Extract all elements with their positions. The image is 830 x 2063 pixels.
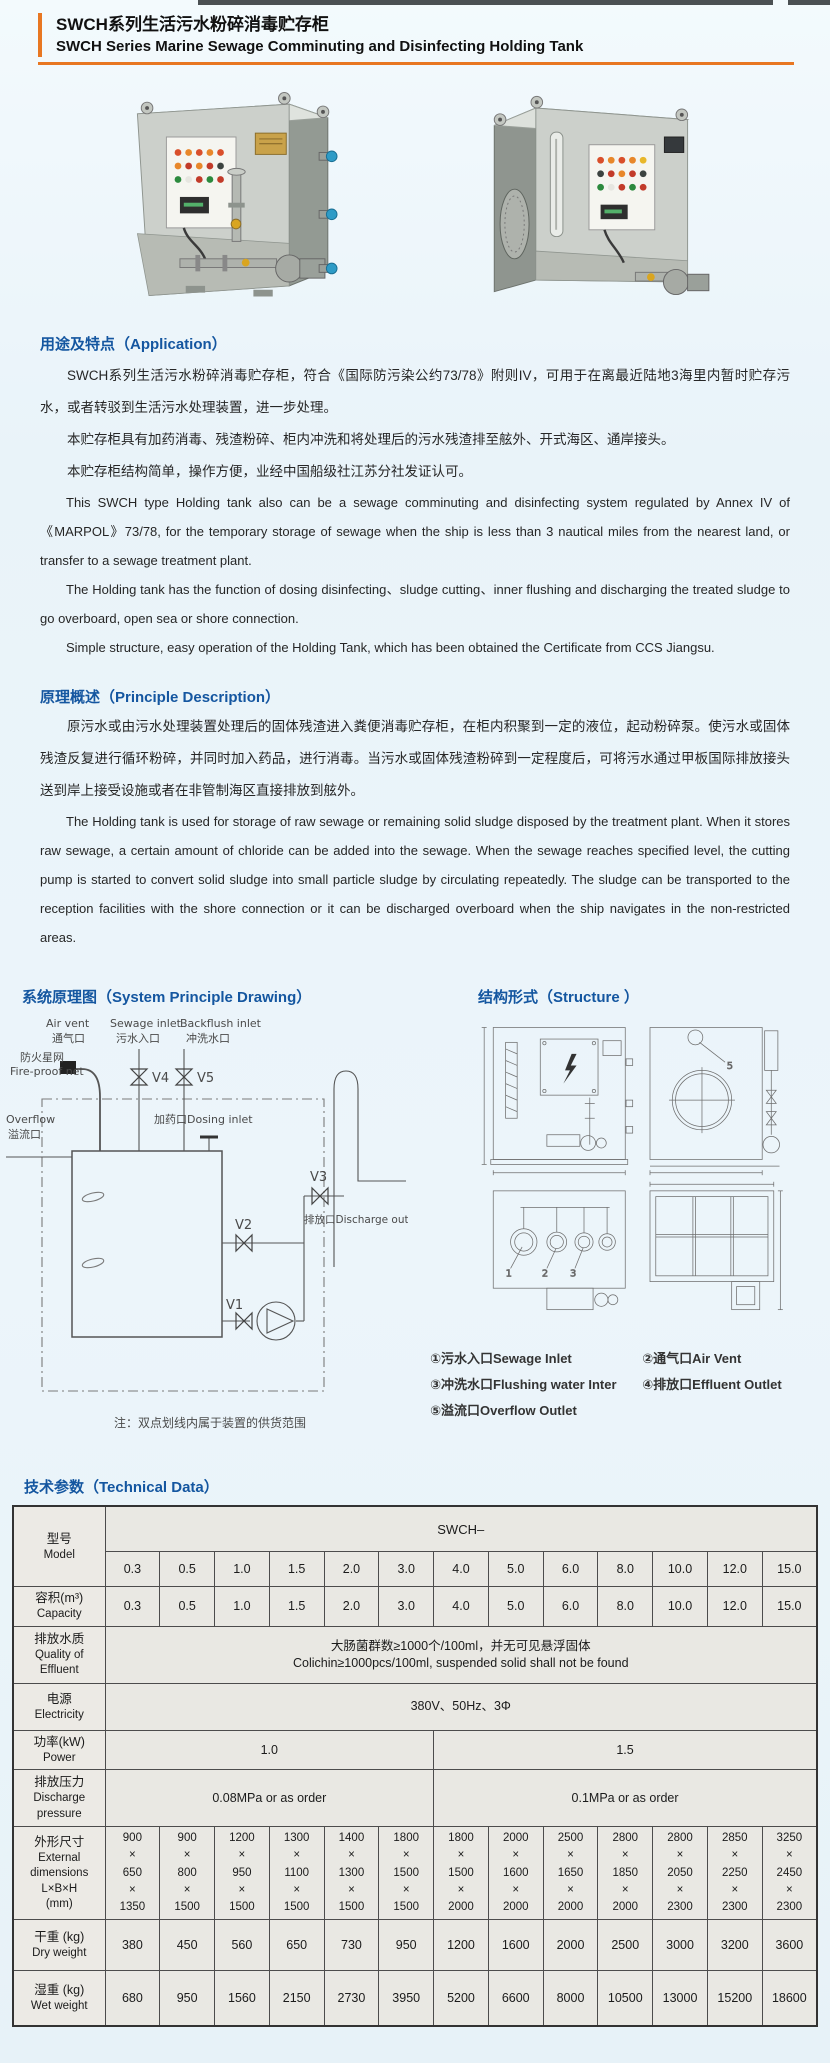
electricity-label-zh: 电源 [15,1691,104,1708]
row-dims-cell: 2500×1650×2000 [543,1827,598,1920]
label-v5: V5 [197,1071,214,1086]
pressure-label-zh: 排放压力 [15,1774,104,1791]
row-models-cell: 8.0 [598,1552,653,1587]
dry-weight-label-zh: 干重 (kg) [15,1929,104,1946]
label-overflow-zh: 溢流口 [8,1127,41,1141]
dry-weight-label-en: Dry weight [15,1946,104,1962]
row-dry-cell: 950 [379,1920,434,1971]
top-strip [198,0,773,5]
application-paragraph-zh-3: 本贮存柜结构简单，操作方便，业经中国船级社江苏分社发证认可。 [40,456,790,488]
capacity-label-zh: 容积(m³) [15,1590,104,1607]
row-capacity-cell: 15.0 [762,1587,817,1626]
row-wet-cell: 13000 [653,1971,708,2027]
label-overflow-en: Overflow [6,1113,55,1126]
row-capacity-cell: 8.0 [598,1587,653,1626]
label-item-3: 3 [570,1269,576,1280]
row-wet-cell: 6600 [488,1971,543,2027]
effluent-value-zh: 大肠菌群数≥1000个/100ml，并无可见悬浮固体 [107,1638,816,1655]
pressure-label-cell: 排放压力 Discharge pressure [13,1770,105,1827]
effluent-row: 排放水质 Quality of Effluent 大肠菌群数≥1000个/100… [13,1626,817,1683]
row-capacity-cell: 1.5 [269,1587,324,1626]
row-wet-cell: 5200 [434,1971,489,2027]
row-dry-cell: 3600 [762,1920,817,1971]
structure-legend-item: ③冲洗水口Flushing water Inter [430,1374,642,1393]
row-dry-cell: 2500 [598,1920,653,1971]
row-dry-cell: 3200 [707,1920,762,1971]
structure-legend-item: ⑤溢流口Overflow Outlet [430,1400,642,1419]
valves [131,1069,328,1329]
row-power-cell: 1.5 [434,1730,817,1769]
pump-symbol [257,1302,295,1340]
row-capacity-cell: 2.0 [324,1587,379,1626]
wet-weight-label-en: Wet weight [15,1999,104,2015]
row-models-cell: 1.5 [269,1552,324,1587]
power-label-zh: 功率(kW) [15,1734,104,1751]
label-v3: V3 [310,1170,327,1185]
row-dims-cell: 2000×1600×2000 [488,1827,543,1920]
label-item-2: 2 [542,1269,548,1280]
principle-heading: 原理概述（Principle Description） [40,686,790,707]
row-capacity-cell: 12.0 [707,1587,762,1626]
capacity-row: 容积(m³) Capacity 0.30.51.01.52.03.04.05.0… [13,1587,817,1626]
application-paragraph-en-1: This SWCH type Holding tank also can be … [40,488,790,575]
row-dims-cell: 2850×2250×2300 [707,1827,762,1920]
structure-side-view: 5 [650,1028,780,1176]
row-wet-cell: 10500 [598,1971,653,2027]
row-wet-cell: 680 [105,1971,160,2027]
pressure-row: 排放压力 Discharge pressure 0.08MPa or as or… [13,1770,817,1827]
electricity-value-cell: 380V、50Hz、3Φ [105,1683,817,1730]
title-block: SWCH系列生活污水粉碎消毒贮存柜 SWCH Series Marine Sew… [38,13,794,65]
structure-top-view: 1 2 3 [493,1191,625,1310]
overboard-pipe [334,1071,406,1267]
row-capacity-cell: 10.0 [653,1587,708,1626]
model-values-row: 0.30.51.01.52.03.04.05.06.08.010.012.015… [13,1552,817,1587]
row-pressure-cell: 0.1MPa or as order [434,1770,817,1827]
effluent-label-zh: 排放水质 [15,1631,104,1648]
structure-legend: ①污水入口Sewage Inlet②通气口Air Vent③冲洗水口Flushi… [430,1348,822,1419]
row-wet-cell: 3950 [379,1971,434,2027]
wet-weight-label-cell: 湿重 (kg) Wet weight [13,1971,105,2027]
label-dosing: 加药口Dosing inlet [154,1113,253,1126]
application-paragraph-en-2: The Holding tank has the function of dos… [40,575,790,633]
label-air-vent-zh: 通气口 [52,1031,85,1045]
row-wet-cell: 8000 [543,1971,598,2027]
structure-legend-item: ②通气口Air Vent [642,1348,822,1367]
label-sewage-en: Sewage inlet [110,1017,182,1030]
row-dims-cell: 1300×1100×1500 [269,1827,324,1920]
power-row: 功率(kW) Power 1.01.5 [13,1730,817,1769]
row-wet-cell: 18600 [762,1971,817,2027]
row-capacity-cell: 0.5 [160,1587,215,1626]
system-principle-heading: 系统原理图（System Principle Drawing） [22,986,412,1007]
row-power-cell: 1.0 [105,1730,434,1769]
row-dry-cell: 730 [324,1920,379,1971]
row-dims-cell: 1400×1300×1500 [324,1827,379,1920]
structure-front-view [482,1028,633,1176]
row-dry-cell: 560 [215,1920,270,1971]
wet-weight-row: 湿重 (kg) Wet weight 680950156021502730395… [13,1971,817,2027]
electricity-row: 电源 Electricity 380V、50Hz、3Φ [13,1683,817,1730]
tank-outline [72,1151,222,1337]
effluent-value-en: Colichin≥1000pcs/100ml, suspended solid … [107,1655,816,1672]
row-dims-cell: 1800×1500×2000 [434,1827,489,1920]
label-backflush-zh: 冲洗水口 [186,1031,230,1045]
air-vent-pipe [76,1069,100,1151]
power-label-en: Power [15,1751,104,1767]
label-backflush-en: Backflush inlet [180,1017,262,1030]
row-dims-cell: 1200×950×1500 [215,1827,270,1920]
label-item-1: 1 [506,1269,512,1280]
row-dry-cell: 1600 [488,1920,543,1971]
row-models-cell: 5.0 [488,1552,543,1587]
effluent-value-cell: 大肠菌群数≥1000个/100ml，并无可见悬浮固体 Colichin≥1000… [105,1626,817,1683]
row-dry-cell: 380 [105,1920,160,1971]
row-dims-cell: 3250×2450×2300 [762,1827,817,1920]
label-sewage-zh: 污水入口 [116,1032,160,1045]
dims-label-formula: L×B×H [15,1882,104,1898]
product-photo-left [91,79,381,311]
principle-paragraph-en: The Holding tank is used for storage of … [40,807,790,952]
row-models-cell: 2.0 [324,1552,379,1587]
body-content: 用途及特点（Application） SWCH系列生活污水粉碎消毒贮存柜，符合《… [0,333,830,952]
row-capacity-cell: 0.3 [105,1587,160,1626]
row-dims-cell: 2800×2050×2300 [653,1827,708,1920]
row-models-cell: 6.0 [543,1552,598,1587]
label-v4: V4 [152,1071,169,1086]
power-label-cell: 功率(kW) Power [13,1730,105,1769]
label-air-vent-en: Air vent [46,1017,90,1030]
label-v1: V1 [226,1298,243,1313]
label-v2: V2 [235,1218,252,1233]
capacity-label-cell: 容积(m³) Capacity [13,1587,105,1626]
capacity-label-en: Capacity [15,1607,104,1623]
row-dry-cell: 650 [269,1920,324,1971]
dims-label-en2: dimensions [15,1866,104,1882]
dimensions-row: 外形尺寸 External dimensions L×B×H (mm) 900×… [13,1827,817,1920]
pump-assembly [635,270,708,295]
structure-legend-item: ④排放口Effluent Outlet [642,1374,822,1393]
structure-plan-view [650,1182,783,1310]
model-label-cell: 型号 Model [13,1506,105,1587]
series-cell: SWCH– [105,1506,817,1552]
application-paragraph-en-3: Simple structure, easy operation of the … [40,633,790,662]
system-principle-diagram: Air vent 通气口 Sewage inlet 污水入口 Backflush… [4,1011,408,1441]
dims-label-unit: (mm) [15,1897,104,1913]
model-label-en: Model [15,1548,104,1564]
row-models-cell: 10.0 [653,1552,708,1587]
side-manhole [500,190,529,260]
spray-nozzle [81,1191,104,1204]
row-dims-cell: 1800×1500×1500 [379,1827,434,1920]
application-paragraph-zh-2: 本贮存柜具有加药消毒、残渣粉碎、柜内冲洗和将处理后的污水残渣排至舷外、开式海区、… [40,424,790,456]
dimensions-label-cell: 外形尺寸 External dimensions L×B×H (mm) [13,1827,105,1920]
row-wet-cell: 950 [160,1971,215,2027]
catalog-page: SWCH系列生活污水粉碎消毒贮存柜 SWCH Series Marine Sew… [0,0,830,2063]
row-wet-cell: 15200 [707,1971,762,2027]
top-strip-segment [788,0,830,5]
control-panel [166,137,236,228]
pump-impeller [267,1309,293,1333]
label-fireproof-en: Fire-proof net [10,1065,84,1078]
system-principle-drawing-panel: 系统原理图（System Principle Drawing） [4,986,412,1446]
row-dims-cell: 2800×1850×2000 [598,1827,653,1920]
row-wet-cell: 1560 [215,1971,270,2027]
row-dims-cell: 900×650×1350 [105,1827,160,1920]
electricity-label-cell: 电源 Electricity [13,1683,105,1730]
effluent-label-cell: 排放水质 Quality of Effluent [13,1626,105,1683]
technical-heading: 技术参数（Technical Data） [24,1476,830,1497]
row-dims-cell: 900×800×1500 [160,1827,215,1920]
structure-legend-item: ①污水入口Sewage Inlet [430,1348,642,1367]
structure-diagrams: 5 [412,1011,822,1341]
row-models-cell: 15.0 [762,1552,817,1587]
row-capacity-cell: 5.0 [488,1587,543,1626]
model-label-zh: 型号 [15,1531,104,1548]
product-photos [0,65,830,317]
row-models-cell: 12.0 [707,1552,762,1587]
spray-nozzle [81,1257,104,1270]
row-models-cell: 4.0 [434,1552,489,1587]
row-wet-cell: 2150 [269,1971,324,2027]
dry-weight-row: 干重 (kg) Dry weight 380450560650730950120… [13,1920,817,1971]
junction-box [664,137,683,152]
technical-table: 型号 Model SWCH– 0.30.51.01.52.03.04.05.06… [12,1505,818,2027]
principle-paragraph-zh: 原污水或由污水处理装置处理后的固体残渣进入粪便消毒贮存柜，在柜内积聚到一定的液位… [40,711,790,807]
effluent-label-en: Quality of Effluent [15,1648,104,1679]
row-wet-cell: 2730 [324,1971,379,2027]
drawing-note: 注：双点划线内属于装置的供货范围 [114,1415,306,1430]
row-models-cell: 1.0 [215,1552,270,1587]
wet-weight-label-zh: 湿重 (kg) [15,1982,104,1999]
page-title-zh: SWCH系列生活污水粉碎消毒贮存柜 [56,14,794,37]
dry-weight-label-cell: 干重 (kg) Dry weight [13,1920,105,1971]
drawings-row: 系统原理图（System Principle Drawing） [0,986,830,1446]
row-capacity-cell: 4.0 [434,1587,489,1626]
row-dry-cell: 1200 [434,1920,489,1971]
label-fireproof-zh: 防火星网 [20,1050,64,1064]
product-photo-right [439,79,739,311]
row-pressure-cell: 0.08MPa or as order [105,1770,434,1827]
row-capacity-cell: 1.0 [215,1587,270,1626]
electricity-label-en: Electricity [15,1708,104,1724]
row-capacity-cell: 3.0 [379,1587,434,1626]
row-models-cell: 3.0 [379,1552,434,1587]
row-dry-cell: 3000 [653,1920,708,1971]
pressure-label-en: Discharge pressure [15,1791,104,1822]
row-models-cell: 0.5 [160,1552,215,1587]
control-panel [589,145,655,230]
supply-scope-boundary [42,1099,324,1391]
row-dry-cell: 450 [160,1920,215,1971]
structure-heading: 结构形式（Structure ） [478,986,822,1007]
page-title-en: SWCH Series Marine Sewage Comminuting an… [56,37,794,57]
structure-panel: 结构形式（Structure ） [412,986,822,1446]
dims-label-en1: External [15,1851,104,1867]
label-item-5: 5 [727,1061,733,1072]
row-models-cell: 0.3 [105,1552,160,1587]
label-discharge: 排放口Discharge outlet [304,1213,408,1226]
row-dry-cell: 2000 [543,1920,598,1971]
dims-label-zh: 外形尺寸 [15,1834,104,1851]
row-capacity-cell: 6.0 [543,1587,598,1626]
electric-hazard-symbol [563,1054,576,1084]
application-paragraph-zh-1: SWCH系列生活污水粉碎消毒贮存柜，符合《国际防污染公约73/78》附则IV，可… [40,360,790,424]
application-heading: 用途及特点（Application） [40,333,790,354]
